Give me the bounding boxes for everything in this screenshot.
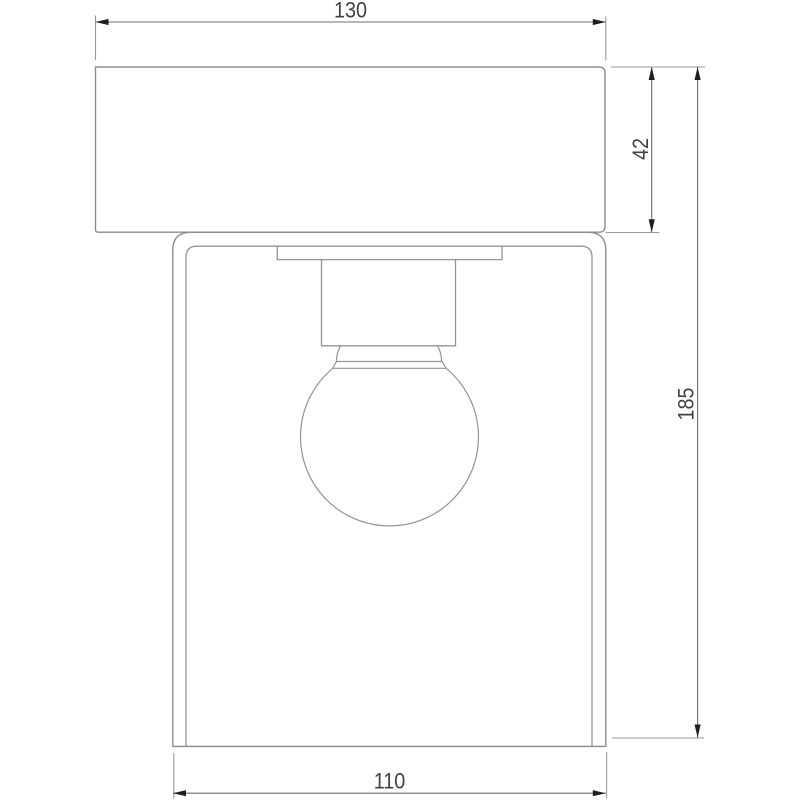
svg-text:185: 185 [674, 387, 698, 420]
svg-text:42: 42 [629, 138, 653, 160]
svg-text:110: 110 [374, 770, 406, 794]
svg-text:130: 130 [334, 0, 367, 23]
